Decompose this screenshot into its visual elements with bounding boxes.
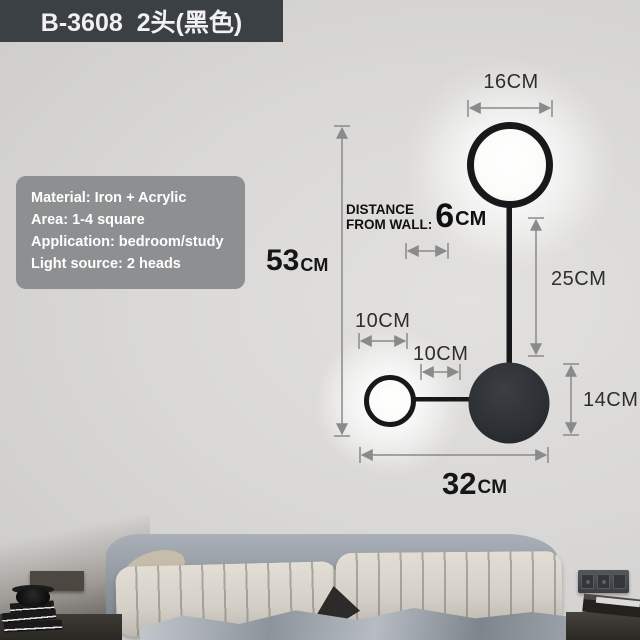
dim-label-total-height: 53 CM [266,246,328,276]
spec-application: Application: bedroom/study [31,231,245,253]
dim-height-value: 53 [266,246,299,276]
dim-label-total-width: 32 CM [442,468,507,499]
dim-label-arm: 10CM [413,343,468,366]
wall-distance-value: 6 [435,201,454,232]
dim-label-small-ring: 10CM [355,310,410,333]
wall-distance-caption-line2: FROM WALL: [346,217,432,232]
spec-light-source: Light source: 2 heads [31,253,245,275]
dim-line-wall-distance [406,243,448,259]
dim-line-small-ring [359,333,407,349]
dim-line-top-width [468,100,552,117]
dim-label-drop: 25CM [551,268,606,291]
spec-area: Area: 1-4 square [31,209,245,231]
dim-line-total-width [360,447,548,463]
dim-label-top-width: 16CM [483,71,538,94]
product-code-banner: B-3608 2头(黑色) [0,0,283,42]
dim-line-disc [563,364,579,435]
dim-line-drop [528,218,544,356]
wall-distance-caption-line1: DISTANCE [346,202,432,217]
wall-lamp-diagram [0,0,640,640]
dim-line-arm [421,364,460,380]
lamp-ring-small [367,378,414,425]
spec-material: Material: Iron + Acrylic [31,187,245,209]
product-photo-scene: 16CM 53 CM DISTANCE FROM WALL: 6 CM 25CM… [0,0,640,640]
dim-label-wall-distance: DISTANCE FROM WALL: 6 CM [346,201,486,232]
dim-label-disc: 14CM [583,389,638,412]
lamp-horizontal-arm [412,397,474,402]
dim-line-total-height [334,126,350,436]
dim-width-unit: CM [477,478,507,497]
lamp-disc [469,363,550,444]
dim-width-value: 32 [442,468,476,499]
wall-distance-unit: CM [455,208,486,231]
specs-card: Material: Iron + Acrylic Area: 1-4 squar… [16,176,245,289]
lamp-ring-large [471,126,550,205]
product-code-text: B-3608 2头(黑色) [41,3,242,39]
dim-height-unit: CM [300,256,328,274]
